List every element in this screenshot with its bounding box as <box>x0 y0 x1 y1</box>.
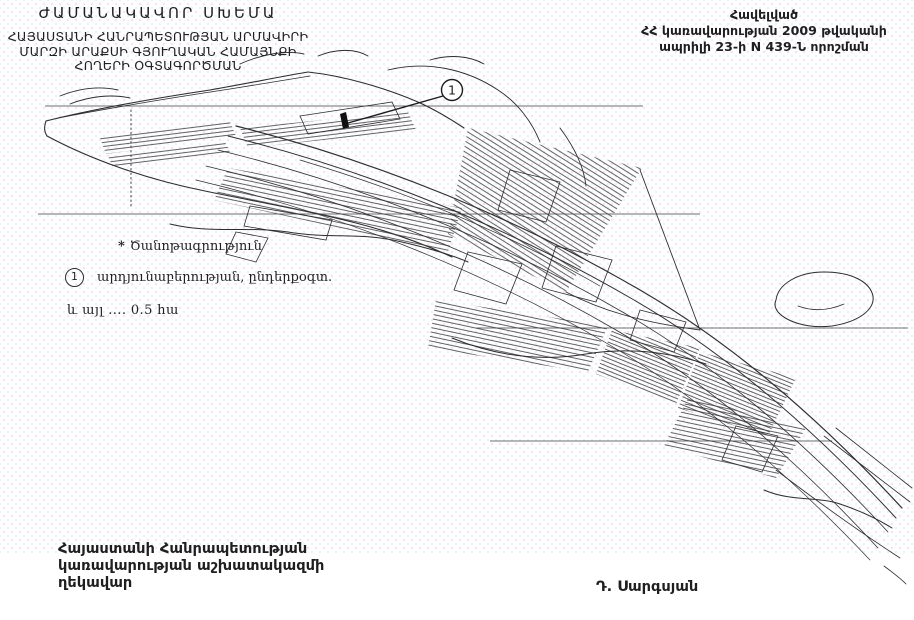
subtitle-line-1: ՀԱՅԱՍՏԱՆԻ ՀԱՆՐԱՊԵՏՈՒԹՅԱՆ ԱՐՄԱՎԻՐԻ <box>2 30 314 45</box>
signature-block: Հայաստանի Հանրապետության կառավարության ա… <box>58 540 388 591</box>
callout-number: 1 <box>448 83 456 98</box>
legend-area-note: և այլ .... 0.5 հա <box>67 303 179 318</box>
signatory-name: Դ. Սարգսյան <box>596 578 698 595</box>
right-enclave-outline <box>775 272 873 327</box>
signature-line-3: ղեկավար <box>58 574 388 591</box>
signature-line-2: կառավարության աշխատակազմի <box>58 557 388 574</box>
legend-note-label: Ծանոթագրություն <box>130 239 262 254</box>
asterisk-marker: * <box>118 239 125 254</box>
legend-item-label: արդյունաբերության, ընդերքօգտ. <box>97 270 332 285</box>
title-block: ԺԱՄԱՆԱԿԱՎՈՐ ՍԽԵՄԱ ՀԱՅԱՍՏԱՆԻ ՀԱՆՐԱՊԵՏՈՒԹՅ… <box>2 4 314 74</box>
annex-line-3: ապրիլի 23-ի N 439-Ն որոշման <box>616 39 912 55</box>
legend-note: *Ծանոթագրություն <box>118 239 262 254</box>
signature-line-1: Հայաստանի Հանրապետության <box>58 540 388 557</box>
annex-line-1: Հավելված <box>616 7 912 23</box>
legend-item-1: 1 արդյունաբերության, ընդերքօգտ. <box>65 268 332 287</box>
legend-circled-number: 1 <box>65 268 84 287</box>
hatched-parcels <box>100 112 806 478</box>
annex-note: Հավելված ՀՀ կառավարության 2009 թվականի ա… <box>616 7 912 55</box>
page-title: ԺԱՄԱՆԱԿԱՎՈՐ ՍԽԵՄԱ <box>2 4 314 22</box>
subtitle-line-2: ՄԱՐԶԻ ԱՐԱՔՍԻ ԳՅՈՒՂԱԿԱՆ ՀԱՄԱՅՆՔԻ <box>2 45 314 60</box>
page-subtitle: ՀԱՅԱՍՏԱՆԻ ՀԱՆՐԱՊԵՏՈՒԹՅԱՆ ԱՐՄԱՎԻՐԻ ՄԱՐԶԻ … <box>2 30 314 74</box>
annex-line-2: ՀՀ կառավարության 2009 թվականի <box>616 23 912 39</box>
scanned-page: 1 ԺԱՄԱՆԱԿԱՎՈՐ ՍԽԵՄԱ ՀԱՅԱՍՏԱՆԻ ՀԱՆՐԱՊԵՏՈՒ… <box>0 0 914 620</box>
subtitle-line-3: ՀՈՂԵՐԻ ՕԳՏԱԳՈՐԾՄԱՆ <box>2 59 314 74</box>
